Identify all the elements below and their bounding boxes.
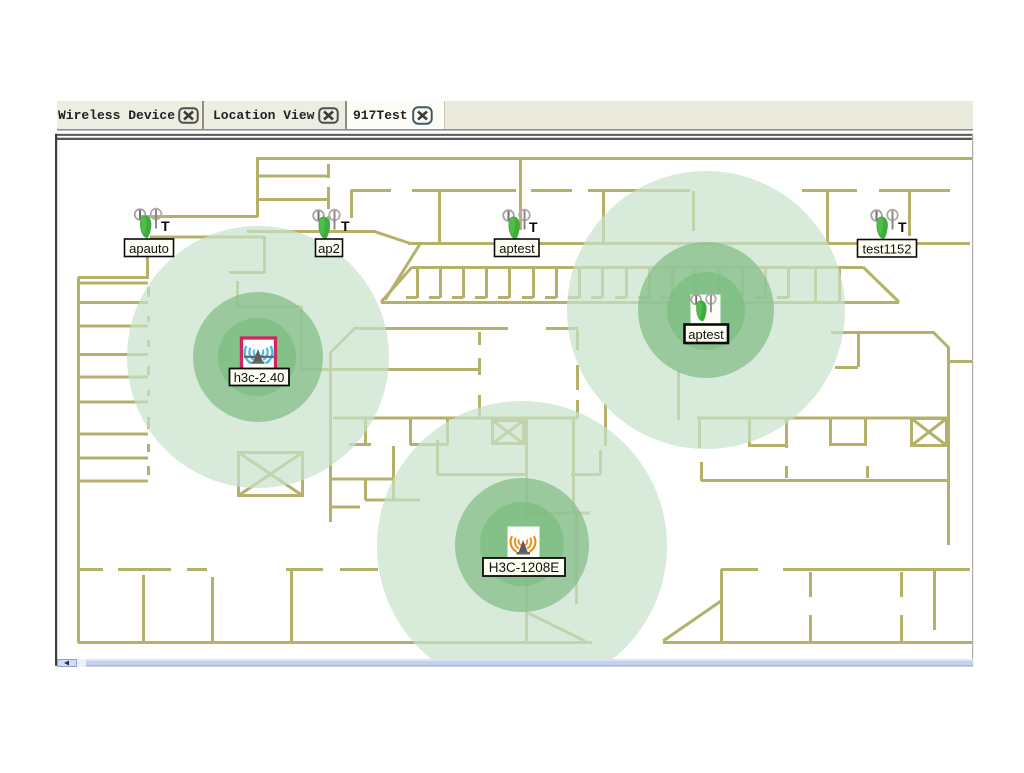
svg-text:h3c-2.40: h3c-2.40 (234, 370, 285, 385)
svg-text:T: T (341, 218, 350, 234)
svg-text:H3C-1208E: H3C-1208E (489, 560, 560, 575)
svg-text:T: T (898, 219, 907, 235)
svg-text:T: T (161, 218, 170, 234)
svg-text:T: T (529, 219, 538, 235)
svg-text:aptest: aptest (499, 241, 535, 256)
svg-text:test1152: test1152 (863, 241, 912, 256)
svg-text:apauto: apauto (129, 241, 169, 256)
svg-text:ap2: ap2 (318, 241, 340, 256)
svg-text:aptest: aptest (688, 327, 724, 342)
